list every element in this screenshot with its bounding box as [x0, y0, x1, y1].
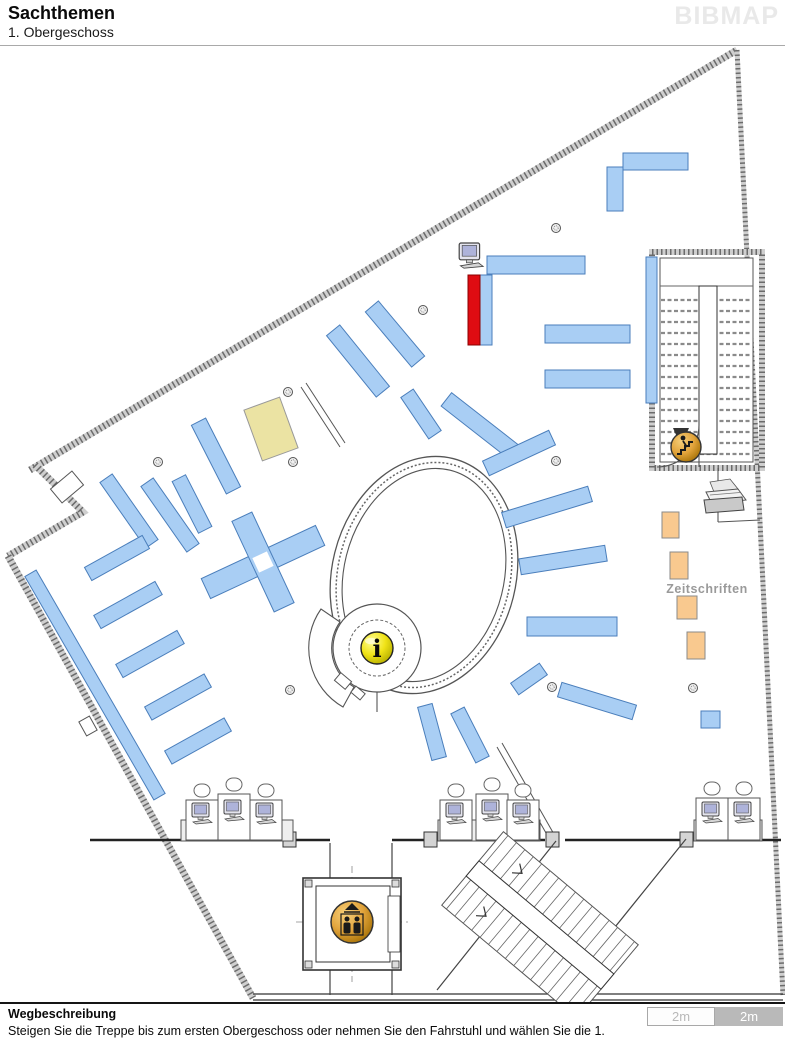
floor-subtitle: 1. Obergeschoss: [8, 24, 114, 40]
scale-segment-light: 2m: [647, 1007, 715, 1026]
header: Sachthemen 1. Obergeschoss BIBMAP: [0, 0, 785, 46]
scale-segment-dark: 2m: [715, 1007, 783, 1026]
bibmap-logo: BIBMAP: [674, 2, 779, 31]
elevator-icon[interactable]: [331, 901, 373, 943]
stairs-icon[interactable]: [671, 432, 701, 462]
stairwell-room: [652, 252, 762, 468]
info-icon-glyph: i: [372, 634, 381, 663]
info-icon[interactable]: i: [361, 632, 393, 664]
directions-heading: Wegbeschreibung: [8, 1007, 116, 1021]
printer-icon: [704, 479, 746, 513]
zeitschriften-label: Zeitschriften: [666, 582, 748, 596]
map-scale-bar: 2m 2m: [647, 1007, 783, 1026]
footer: Wegbeschreibung Steigen Sie die Treppe b…: [0, 1002, 785, 1045]
highlighted-shelf[interactable]: [468, 275, 480, 345]
opac-terminal-icon: [459, 243, 483, 268]
directions-text: Steigen Sie die Treppe bis zum ersten Ob…: [8, 1024, 605, 1038]
page-title: Sachthemen: [8, 3, 115, 24]
beige-shelf: [244, 397, 298, 461]
shelves-group: [25, 153, 720, 800]
lower-staircase: [437, 832, 686, 1019]
floor-map[interactable]: Zeitschriften: [0, 0, 785, 1043]
